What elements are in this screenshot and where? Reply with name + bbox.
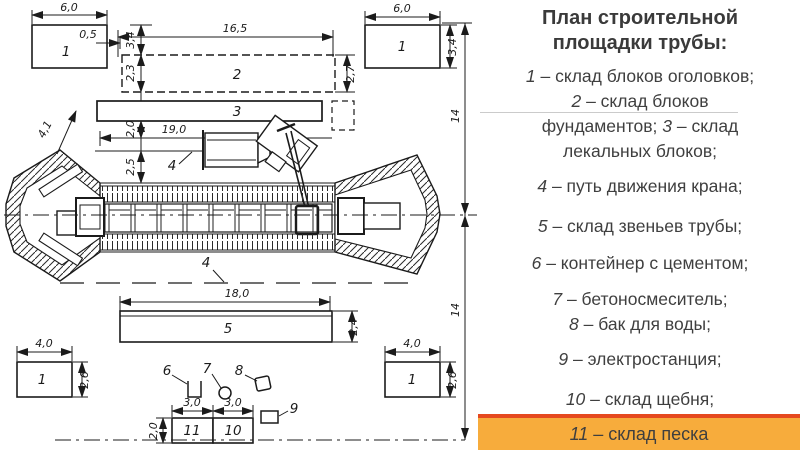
legend-item-1: 1 – склад блоков оголовков; — [480, 64, 800, 89]
storage-number: 1 — [62, 44, 71, 60]
legend-item-2-3: 2 – склад блоков фундаментов; 3 – склад … — [480, 89, 800, 164]
storage-11-and-10: 3,0 3,0 11 10 2,0 — [147, 396, 253, 443]
dim-label: 19,0 — [162, 123, 187, 136]
dim-label: 14 — [449, 303, 462, 317]
slide: 1 6,0 0,5 3,4 2,3 1,6 2,0 2,5 — [0, 0, 800, 450]
site-plan-drawing: 1 6,0 0,5 3,4 2,3 1,6 2,0 2,5 — [0, 0, 480, 450]
dim-label: 2,0 — [124, 120, 137, 138]
storage-1-bottom-left: 1 4,0 2,6 — [17, 337, 91, 397]
dim-label: 2,6 — [78, 371, 91, 389]
storage-number: 5 — [224, 321, 233, 337]
legend-item-10: 10 – склад щебня; — [480, 387, 800, 412]
dim-label: 2,3 — [124, 64, 137, 82]
page-title: План строительной площадки трубы: — [480, 6, 800, 56]
dim-label: 6,0 — [60, 1, 78, 14]
power-station-item: 9 — [261, 401, 298, 423]
dim-label: 0,5 — [79, 28, 97, 41]
storage-number: 1 — [398, 39, 407, 55]
dim-label: 2,0 — [147, 422, 160, 440]
dim-label: 3,4 — [446, 38, 459, 56]
storage-number: 10 — [224, 423, 241, 439]
concrete-mixer-item: 7 — [203, 361, 231, 399]
legend-item-5: 5 – склад звеньев трубы; — [480, 214, 800, 239]
legend-item-6: 6 – контейнер с цементом; — [480, 251, 800, 276]
storage-number: 1 — [408, 372, 417, 388]
dim-label: 3,4 — [124, 31, 137, 49]
storage-2-foundation-blocks: 16,5 2 2,7 — [118, 22, 357, 92]
storage-1-bottom-right: 1 4,0 2,6 — [385, 337, 459, 397]
item-label: 6 — [163, 363, 172, 379]
dim-label: 4,0 — [403, 337, 421, 350]
dim-label: 3,0 — [224, 396, 242, 409]
storage-number: 1 — [38, 372, 47, 388]
dim-label: 18,0 — [225, 287, 250, 300]
dim-label: 2,6 — [446, 371, 459, 389]
storage-5-pipe-links: 18,0 5 2,4 — [120, 287, 360, 342]
highlight-band: 11 – склад песка — [478, 414, 800, 450]
crane-path-label: 4 — [168, 158, 177, 174]
storage-number: 2 — [233, 67, 242, 83]
legend-panel: План строительной площадки трубы: 1 – ск… — [480, 0, 800, 450]
legend-item-7-8: 7 – бетоносмеситель; 8 – бак для воды; — [480, 287, 800, 337]
crane-path-label: 4 — [202, 255, 211, 271]
dim-label: 6,0 — [393, 2, 411, 15]
dim-label: 16,5 — [223, 22, 248, 35]
dim-label: 14 — [449, 109, 462, 123]
storage-1-top-right: 1 6,0 3,4 — [365, 2, 459, 68]
storage-number: 11 — [183, 423, 200, 439]
dim-label: 2,5 — [124, 158, 137, 176]
item-label: 8 — [235, 363, 244, 379]
dim-label: 2,7 — [344, 65, 357, 83]
item-label: 9 — [290, 401, 299, 417]
dim-label: 2,4 — [347, 318, 360, 336]
cement-container-item: 6 — [163, 363, 201, 397]
storage-number: 3 — [233, 104, 242, 120]
item-label: 7 — [203, 361, 212, 377]
dim-label: 4,0 — [35, 337, 53, 350]
crane-path-lower: 4 — [60, 255, 410, 283]
water-tank-item: 8 — [235, 363, 271, 391]
dim-label: 4,1 — [35, 119, 55, 141]
legend-item-9: 9 – электростанция; — [480, 347, 800, 372]
storage-1-top-left: 1 6,0 0,5 — [32, 1, 120, 68]
legend-item-4: 4 – путь движения крана; — [480, 174, 800, 199]
pipe-trench — [100, 183, 335, 252]
dim-label: 3,0 — [183, 396, 201, 409]
